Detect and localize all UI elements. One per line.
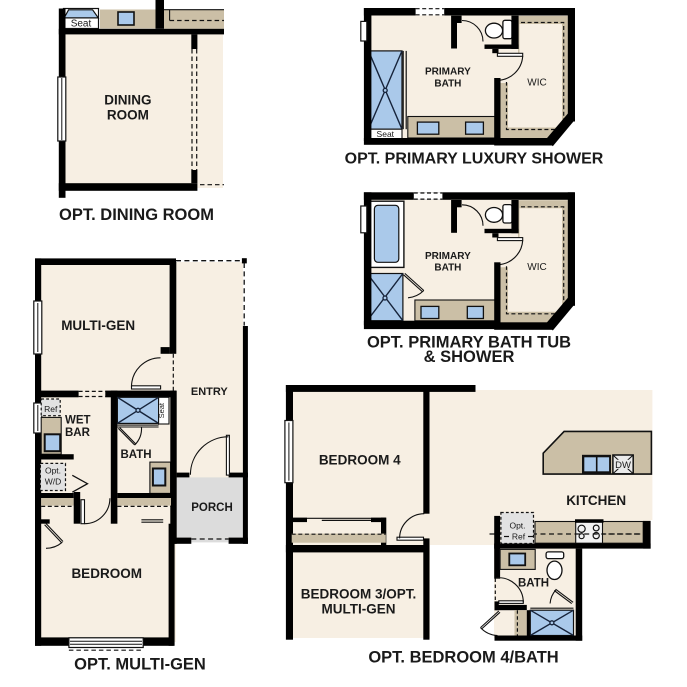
svg-text:BAR: BAR — [65, 427, 91, 439]
svg-text:Ref: Ref — [512, 532, 526, 542]
svg-text:Seat: Seat — [71, 19, 92, 30]
svg-text:MULTI-GEN: MULTI-GEN — [61, 318, 135, 333]
svg-text:& SHOWER: & SHOWER — [424, 348, 515, 366]
svg-text:Opt.: Opt. — [45, 466, 61, 476]
svg-text:DINING: DINING — [104, 93, 151, 108]
svg-text:PRIMARY: PRIMARY — [425, 251, 471, 262]
svg-text:BATH: BATH — [434, 263, 461, 274]
svg-text:WET: WET — [65, 415, 91, 427]
svg-text:BEDROOM: BEDROOM — [71, 566, 142, 581]
svg-text:ROOM: ROOM — [107, 108, 149, 123]
svg-text:W/D: W/D — [45, 477, 62, 487]
svg-text:PORCH: PORCH — [191, 502, 233, 514]
svg-text:ENTRY: ENTRY — [191, 386, 229, 398]
svg-text:BEDROOM 4: BEDROOM 4 — [319, 452, 401, 467]
svg-text:WIC: WIC — [527, 262, 546, 273]
svg-text:BATH: BATH — [434, 78, 461, 89]
svg-text:BATH: BATH — [518, 578, 549, 590]
svg-text:Ref: Ref — [44, 404, 58, 414]
svg-text:BATH: BATH — [120, 449, 151, 461]
svg-text:OPT. DINING ROOM: OPT. DINING ROOM — [59, 206, 214, 224]
svg-text:OPT. BEDROOM 4/BATH: OPT. BEDROOM 4/BATH — [368, 649, 558, 667]
svg-text:KITCHEN: KITCHEN — [566, 493, 626, 508]
svg-text:PRIMARY: PRIMARY — [425, 67, 471, 78]
svg-text:Seat: Seat — [157, 402, 166, 418]
svg-text:DW: DW — [615, 460, 631, 471]
svg-text:WIC: WIC — [527, 78, 546, 89]
svg-text:OPT. MULTI-GEN: OPT. MULTI-GEN — [74, 656, 206, 674]
svg-text:Seat: Seat — [377, 129, 395, 139]
svg-text:OPT. PRIMARY LUXURY SHOWER: OPT. PRIMARY LUXURY SHOWER — [345, 151, 604, 168]
svg-text:Opt.: Opt. — [509, 521, 525, 531]
svg-text:MULTI-GEN: MULTI-GEN — [322, 602, 396, 617]
svg-text:BEDROOM 3/OPT.: BEDROOM 3/OPT. — [301, 586, 417, 601]
